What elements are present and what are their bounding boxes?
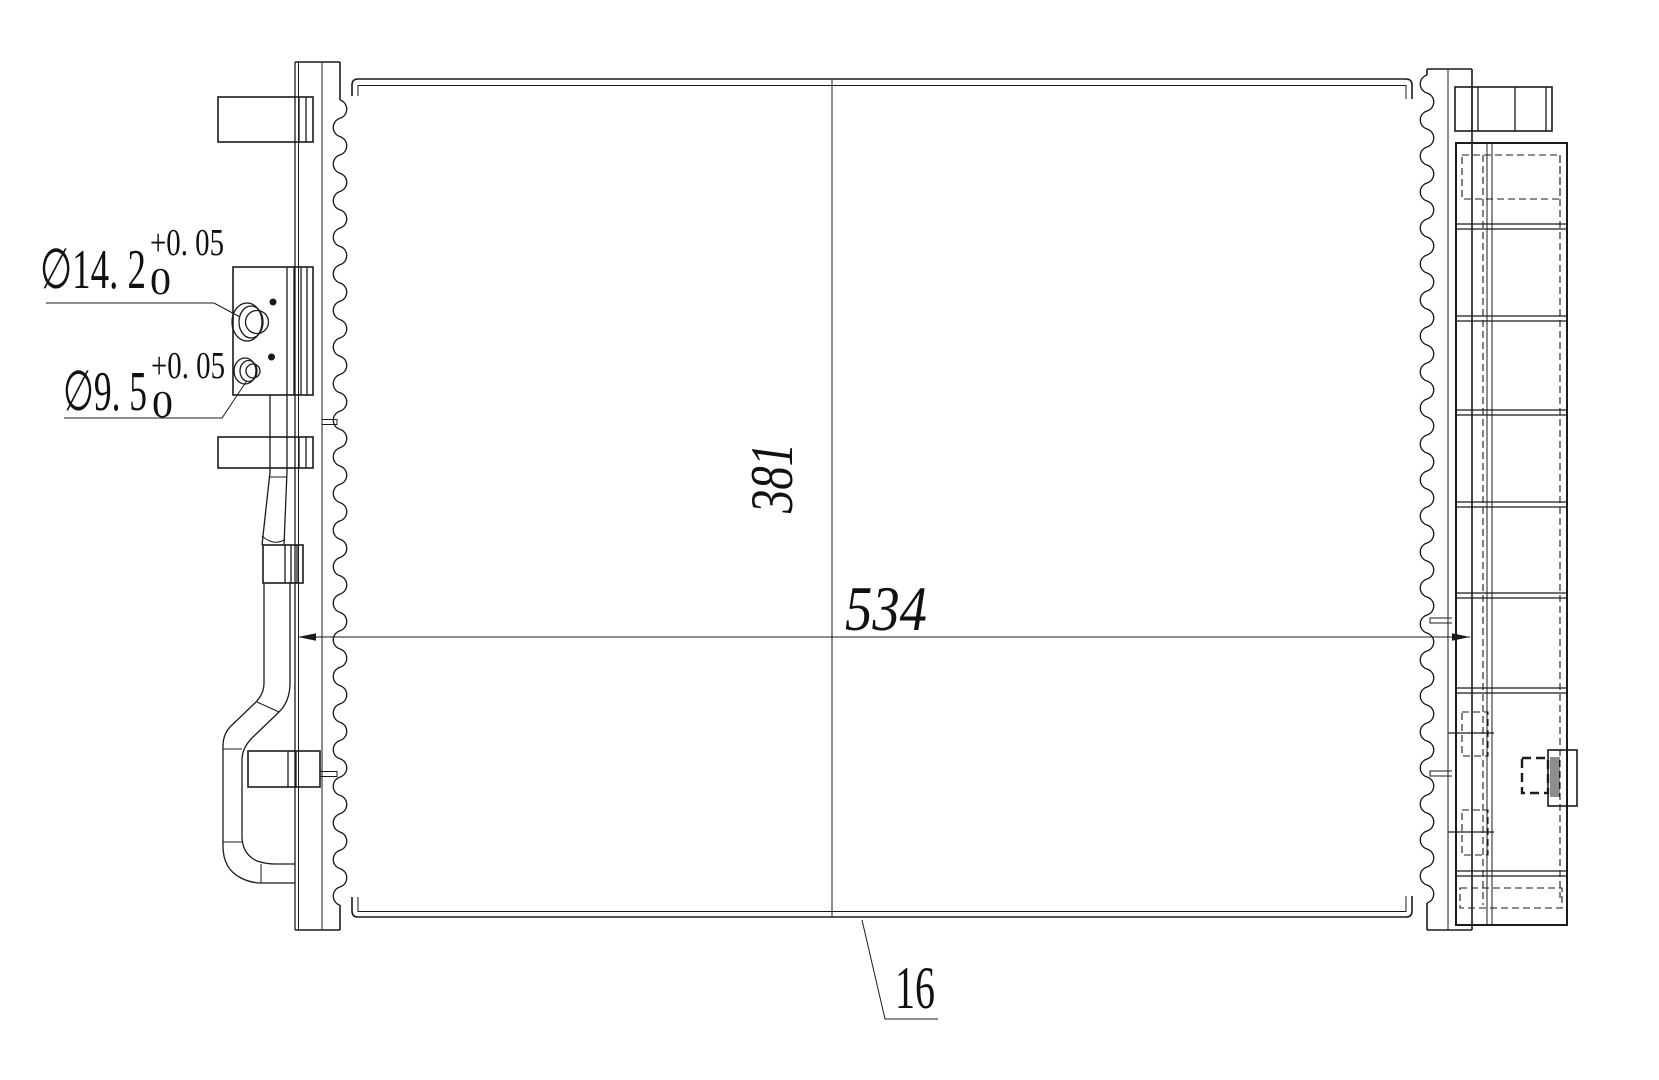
dia-small-tol-lower: 0 bbox=[152, 384, 173, 426]
left-fin-wave bbox=[333, 100, 347, 905]
dimension-texts: ∅14. 2 +0. 05 0 ∅9. 5 +0. 05 0 381 534 1… bbox=[40, 222, 935, 1021]
arrow-left bbox=[298, 633, 316, 641]
pipe-union-sleeve bbox=[263, 545, 303, 583]
dia-large-leader bbox=[46, 303, 240, 317]
right-core-tab-lower bbox=[1430, 771, 1452, 776]
dia-small-tol-upper: +0. 05 bbox=[151, 345, 225, 387]
drawing-canvas: ∅14. 2 +0. 05 0 ∅9. 5 +0. 05 0 381 534 1… bbox=[0, 0, 1659, 1080]
screw-hole-top bbox=[270, 299, 277, 306]
hidden-top-box bbox=[1462, 155, 1560, 199]
core-outline bbox=[352, 79, 1412, 917]
core-height-label: 381 bbox=[739, 443, 805, 514]
middle-bracket bbox=[218, 437, 313, 468]
hidden-bottom-box bbox=[1460, 888, 1562, 908]
lower-pipe-bracket bbox=[248, 751, 337, 787]
left-tank bbox=[295, 62, 347, 930]
core-thickness-label: 16 bbox=[895, 955, 935, 1021]
dia-large-tol-lower: 0 bbox=[150, 261, 171, 303]
right-fin-wave bbox=[1420, 75, 1434, 903]
fitting-block bbox=[232, 267, 313, 395]
right-top-bracket bbox=[1455, 87, 1552, 131]
core-width-label: 534 bbox=[845, 573, 927, 644]
inlet-port-large bbox=[232, 303, 269, 341]
arrow-right bbox=[1452, 633, 1470, 641]
right-tank bbox=[1420, 69, 1472, 930]
screw-hole-bottom bbox=[268, 354, 275, 361]
right-core-tab-upper bbox=[1430, 618, 1452, 623]
dimension-lines bbox=[46, 80, 1470, 1019]
hidden-port-upper bbox=[1462, 712, 1488, 756]
dia-large-tol-upper: +0. 05 bbox=[150, 222, 224, 264]
dia-small-label: ∅9. 5 bbox=[63, 361, 147, 423]
outlet-port-small bbox=[234, 358, 260, 384]
left-core-tab bbox=[322, 420, 337, 425]
condenser-drawing: ∅14. 2 +0. 05 0 ∅9. 5 +0. 05 0 381 534 1… bbox=[0, 0, 1659, 1080]
receiver-frame bbox=[1430, 143, 1577, 925]
dia-large-label: ∅14. 2 bbox=[40, 239, 146, 301]
hidden-connector-box bbox=[1522, 758, 1548, 793]
upper-bracket bbox=[218, 97, 313, 142]
side-connector bbox=[1522, 750, 1577, 806]
